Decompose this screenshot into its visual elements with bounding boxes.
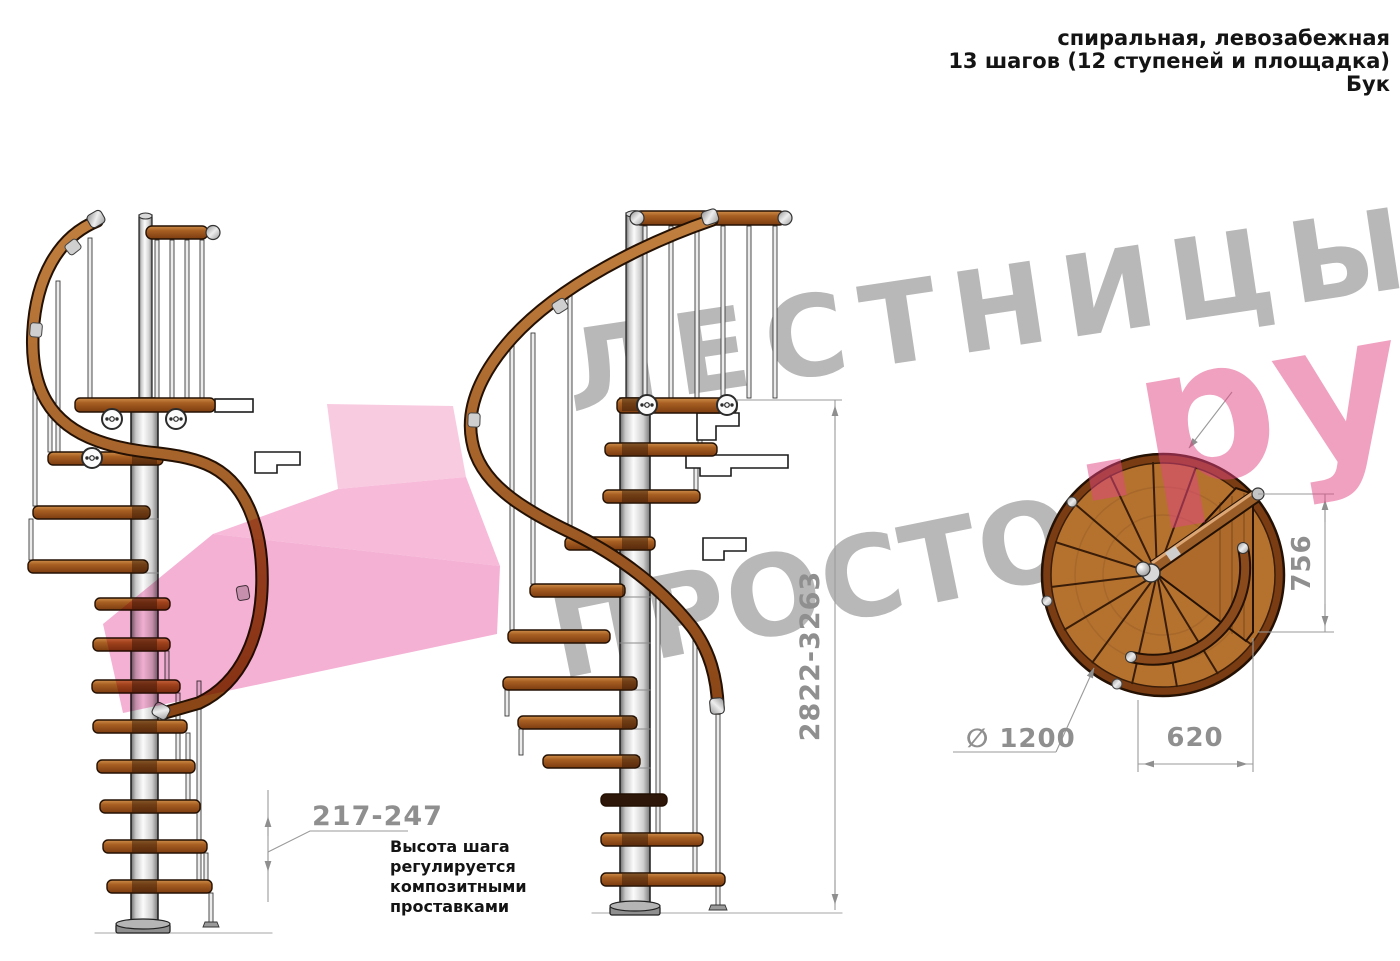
dim-step-height-label: 217-247 (312, 801, 443, 832)
baluster (170, 240, 174, 398)
center-support-brackets (686, 413, 788, 560)
step-board (601, 833, 703, 846)
baluster-foot (709, 905, 727, 910)
step-board (75, 398, 215, 412)
staircase-spec-drawing: ЛЕСТНИЦЫ ПРОСТО (0, 0, 1400, 961)
dim-landing-depth-label: 756 (1287, 534, 1317, 591)
baluster (155, 240, 159, 398)
step-board (530, 584, 625, 597)
dim-total-height (736, 400, 842, 910)
step-board (107, 880, 212, 893)
dim-diameter-label: ∅ 1200 (966, 724, 1076, 754)
baluster (531, 333, 535, 584)
connector-disc (102, 409, 122, 429)
dim-landing-width-label: 620 (1166, 723, 1223, 753)
baluster (568, 292, 572, 537)
baluster (747, 226, 751, 398)
baluster (510, 341, 514, 630)
baluster (519, 729, 523, 755)
connector-disc (717, 395, 737, 415)
rail-end-cap (709, 697, 724, 714)
baluster (29, 519, 33, 560)
rail-sleeve (468, 413, 480, 427)
step-board (601, 873, 725, 886)
baluster (200, 240, 204, 398)
step-board (28, 560, 148, 573)
rail-end-knob (630, 211, 644, 225)
baluster (669, 226, 673, 398)
step-board (508, 630, 610, 643)
note-line: проставками (390, 897, 527, 917)
connector-disc (82, 448, 102, 468)
baluster (773, 226, 777, 398)
baluster-foot (203, 922, 219, 927)
step-board (603, 490, 700, 503)
note-line: Высота шага (390, 837, 527, 857)
baluster (209, 893, 213, 922)
rail-end-knob (206, 226, 220, 240)
connector-disc (166, 409, 186, 429)
baluster (204, 853, 208, 880)
hub-ball (1136, 562, 1150, 576)
rail-sleeve (29, 323, 42, 338)
baluster (721, 226, 725, 398)
step-board (601, 794, 667, 806)
dim-total-height-label: 2822-3263 (795, 571, 826, 742)
left-support-brackets (215, 399, 300, 473)
connector-disc (637, 395, 657, 415)
step-board (518, 716, 637, 729)
baluster (88, 238, 92, 398)
step-board (503, 677, 637, 690)
note-line: композитными (390, 877, 527, 897)
baluster (695, 226, 699, 398)
note-step-height: Высота шага регулируется композитными пр… (390, 837, 527, 917)
left-top-rail (146, 226, 220, 240)
rail-end-knob (778, 211, 792, 225)
center-staircase-side-view (468, 208, 842, 915)
baluster (185, 240, 189, 398)
baluster (505, 690, 509, 716)
note-line: регулируется (390, 857, 527, 877)
step-board (605, 443, 717, 456)
